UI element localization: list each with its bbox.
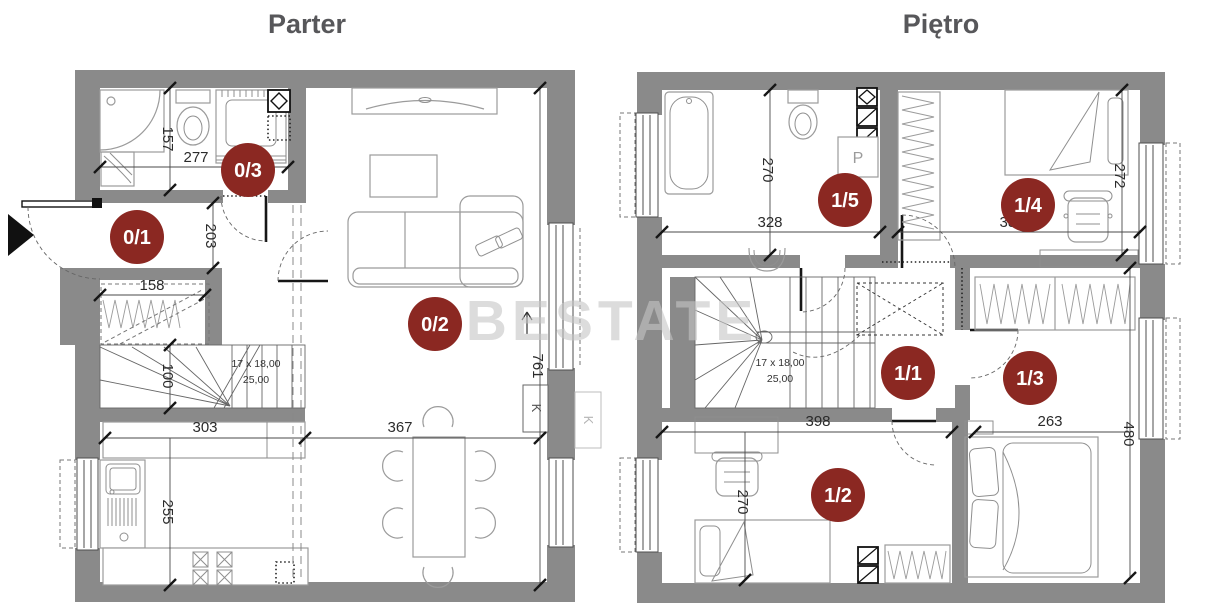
room-badge-1-2: 1/2 xyxy=(811,468,865,522)
svg-text:761: 761 xyxy=(529,353,546,378)
room-badge-0-3: 0/3 xyxy=(221,143,275,197)
svg-text:398: 398 xyxy=(805,413,830,430)
bedroom-1-4-furniture xyxy=(898,90,1138,267)
svg-text:255: 255 xyxy=(159,499,176,524)
floorplan-page: Parter xyxy=(0,0,1213,616)
svg-text:0/1: 0/1 xyxy=(123,227,151,249)
svg-text:1/4: 1/4 xyxy=(1014,195,1043,217)
svg-text:263: 263 xyxy=(1037,413,1062,430)
svg-text:367: 367 xyxy=(387,419,412,436)
parter-title: Parter xyxy=(268,9,347,39)
dim-hall-depth: 203 xyxy=(202,197,219,274)
svg-text:272: 272 xyxy=(1111,163,1128,188)
room-badge-0-2: 0/2 xyxy=(408,297,462,351)
svg-text:100: 100 xyxy=(159,363,176,388)
svg-text:1/1: 1/1 xyxy=(894,363,922,385)
stair-note-line1: 17 x 18,00 xyxy=(231,358,280,370)
svg-text:157: 157 xyxy=(159,126,176,151)
room-badge-1-4: 1/4 xyxy=(1001,178,1055,232)
stair-note-line2: 25,00 xyxy=(767,373,793,385)
dim-r2-depth: 270 xyxy=(734,432,751,586)
svg-text:203: 203 xyxy=(202,223,219,248)
room-badge-1-3: 1/3 xyxy=(1003,351,1057,405)
room-badge-0-1: 0/1 xyxy=(110,210,164,264)
svg-text:480: 480 xyxy=(1120,421,1137,446)
watermark: BESTATE xyxy=(466,289,759,353)
dim-r4-depth: 272 xyxy=(1111,84,1128,261)
washer-label: P xyxy=(853,150,864,167)
kitchen-fixtures xyxy=(100,422,308,585)
room-badge-1-5: 1/5 xyxy=(818,173,872,227)
svg-text:1/3: 1/3 xyxy=(1016,368,1044,390)
svg-text:1/5: 1/5 xyxy=(831,190,859,212)
floor-plans-svg: Parter xyxy=(0,0,1213,616)
entrance-door xyxy=(8,198,102,279)
vent-stack-icon xyxy=(858,547,878,583)
svg-text:0/3: 0/3 xyxy=(234,160,262,182)
pietro-title: Piętro xyxy=(903,9,980,39)
svg-text:1/2: 1/2 xyxy=(824,485,852,507)
svg-text:303: 303 xyxy=(192,419,217,436)
dim-closet-width: 158 xyxy=(94,277,211,301)
parter-stairs: 17 x 18,00 25,00 xyxy=(100,345,305,408)
svg-text:270: 270 xyxy=(759,157,776,182)
flue-label-k2: K xyxy=(581,416,596,425)
dim-bath-depth: 157 xyxy=(159,82,176,196)
stair-note-line2: 25,00 xyxy=(243,374,269,386)
svg-text:0/2: 0/2 xyxy=(421,314,449,336)
svg-text:277: 277 xyxy=(183,149,208,166)
sofa xyxy=(348,196,523,287)
flue-label-k1: K xyxy=(529,404,544,413)
svg-text:158: 158 xyxy=(139,277,164,294)
hall-doors xyxy=(221,196,328,281)
svg-text:270: 270 xyxy=(734,489,751,514)
dim-bath-depth: 270 xyxy=(759,84,776,261)
dim-dining-width: 367 xyxy=(305,419,546,444)
room-badge-1-1: 1/1 xyxy=(881,346,935,400)
skylight xyxy=(793,283,943,357)
washing-machine: P xyxy=(838,137,878,177)
pietro-doors xyxy=(801,215,1018,465)
stair-note-line1: 17 x 18,00 xyxy=(755,357,804,369)
entrance-arrow-icon xyxy=(8,214,34,256)
svg-text:328: 328 xyxy=(757,214,782,231)
desk-chair xyxy=(1064,191,1112,242)
